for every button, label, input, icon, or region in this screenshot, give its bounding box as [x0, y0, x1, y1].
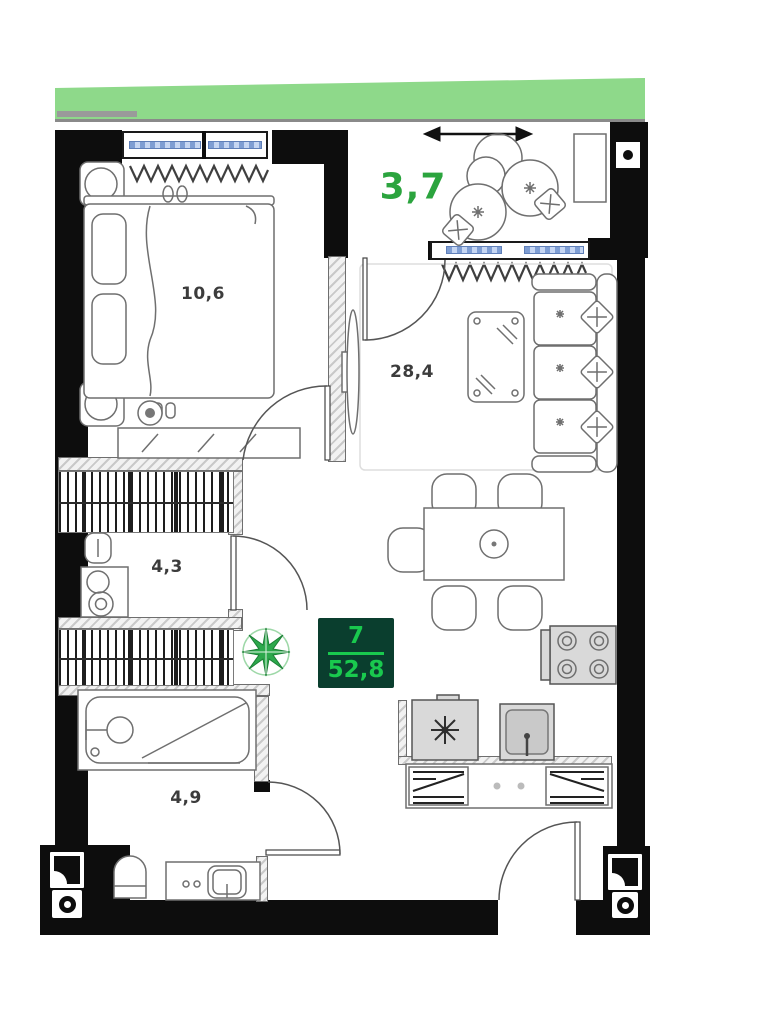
tv [342, 310, 359, 434]
room-label-wc: 4,3 [151, 557, 183, 577]
bathtub [78, 690, 256, 770]
sofa [532, 274, 617, 472]
balcony-side-table [574, 134, 606, 202]
double-arrow-icon [424, 127, 532, 141]
kitchen-sink [500, 704, 554, 760]
room-label-bedroom: 10,6 [181, 284, 225, 304]
unit-badge: 7 52,8 [318, 618, 394, 688]
fridge [412, 695, 478, 760]
stool [138, 401, 162, 425]
unit-number: 7 [348, 625, 364, 648]
radiator-bedroom [130, 166, 268, 181]
room-label-bathroom: 4,9 [170, 788, 202, 808]
wc-toilet [85, 533, 111, 563]
bed [84, 186, 274, 398]
coffee-table [468, 312, 524, 402]
door-balcony [363, 258, 445, 340]
washing-machine [81, 567, 128, 617]
stove [541, 626, 616, 684]
door-entry [499, 822, 580, 900]
kitchen-cabinets [406, 764, 612, 808]
badge-divider [328, 652, 384, 655]
dresser [118, 428, 300, 458]
vanity-sink [166, 862, 260, 900]
snowflake-icon [431, 716, 459, 744]
balcony-chair [441, 184, 506, 247]
compass-rose-icon [238, 624, 294, 680]
door-bathroom [266, 782, 340, 855]
door-wc [231, 536, 307, 610]
balcony-chair [502, 160, 567, 221]
furniture-layer [0, 0, 766, 1024]
room-label-balcony: 3,7 [380, 167, 447, 208]
unit-total-area: 52,8 [328, 659, 385, 682]
floor-plan-page: 7 52,8 3,7 10,6 28,4 4,3 4,9 [0, 0, 766, 1024]
dining-set [388, 474, 564, 630]
bathroom-toilet [114, 856, 146, 898]
room-label-living: 28,4 [390, 362, 434, 382]
